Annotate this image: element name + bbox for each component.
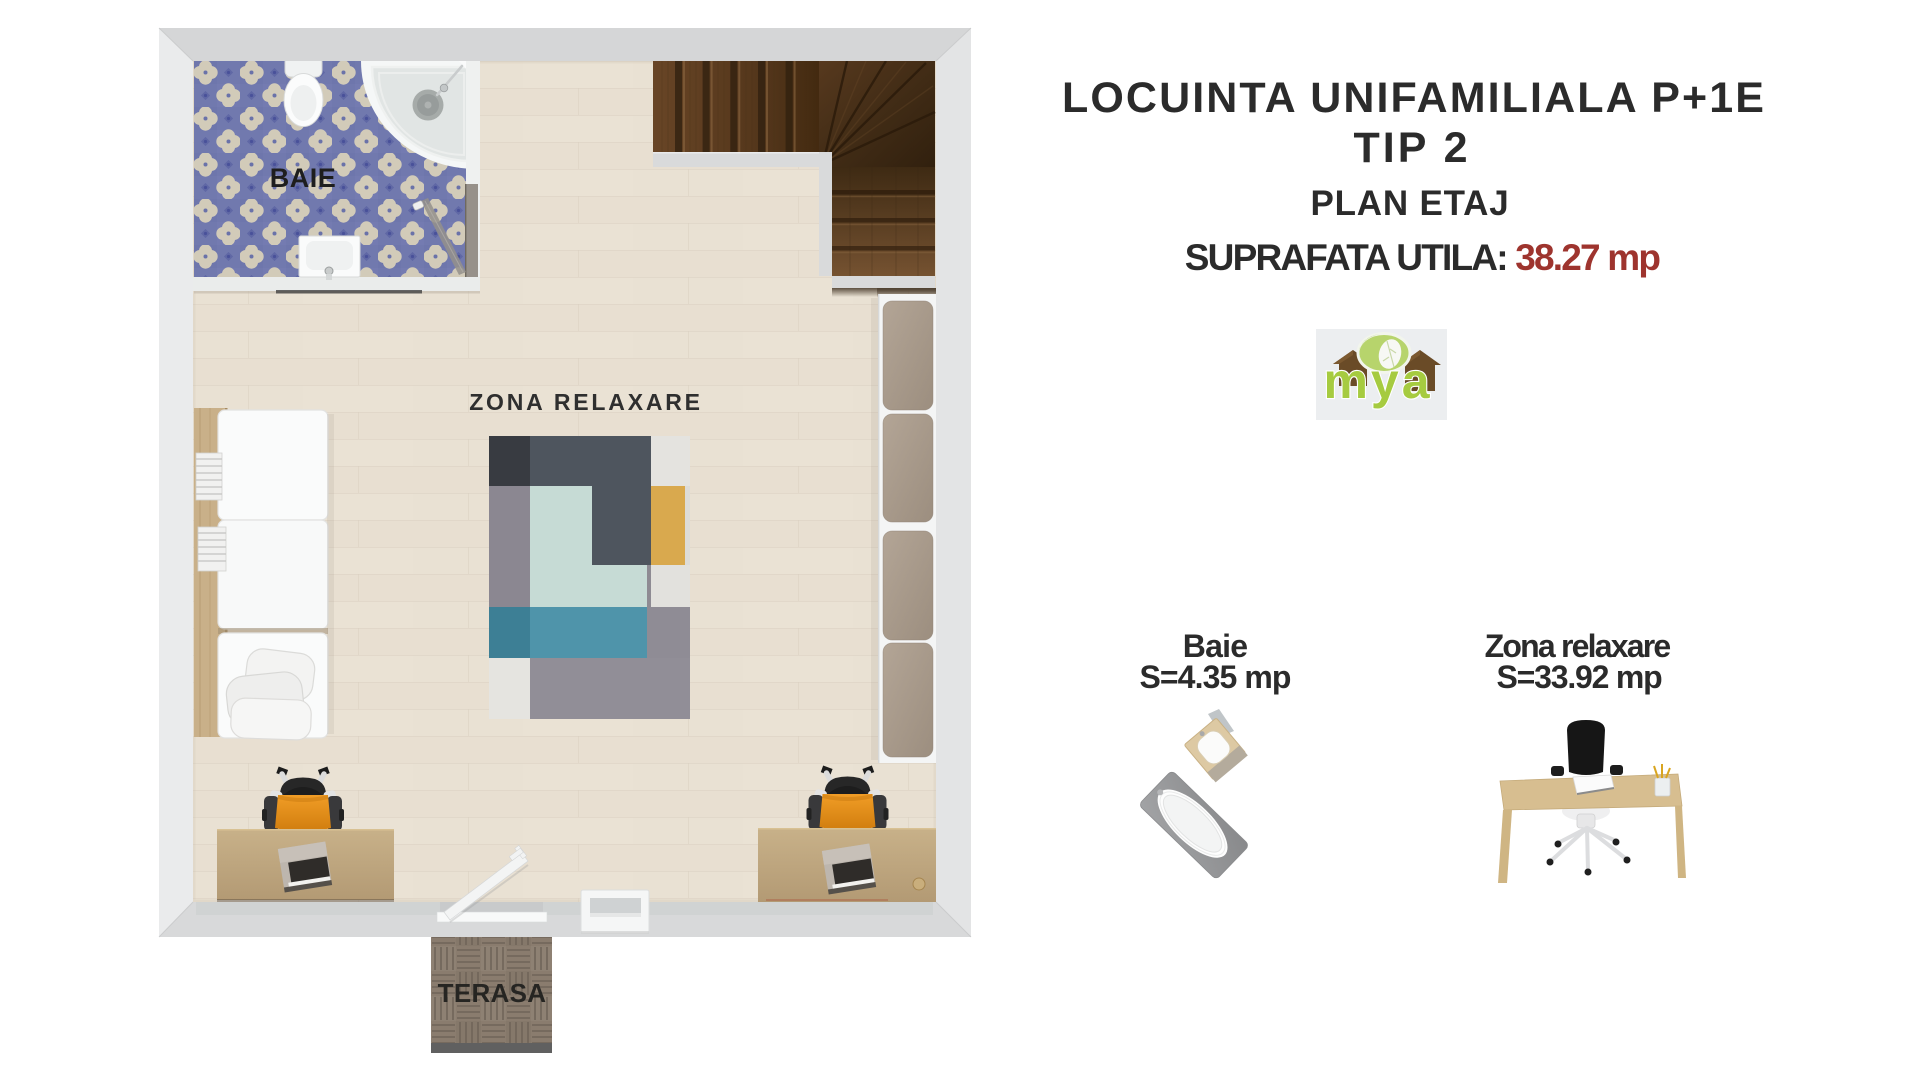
svg-text:mya: mya [1323, 353, 1432, 409]
svg-text:BAIE: BAIE [270, 163, 337, 193]
svg-text:ZONA RELAXARE: ZONA RELAXARE [469, 389, 703, 415]
svg-text:TERASA: TERASA [438, 978, 547, 1008]
